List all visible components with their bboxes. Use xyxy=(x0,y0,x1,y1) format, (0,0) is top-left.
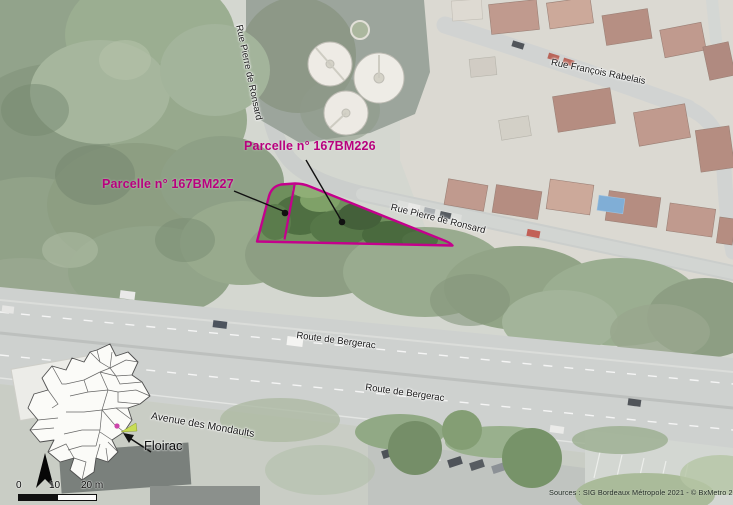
scale-bar-segment-white xyxy=(58,495,96,500)
parcel-226-label: Parcelle n° 167BM226 xyxy=(244,140,376,153)
scale-bar-segment-black xyxy=(19,495,58,500)
scale-tick-0: 0 xyxy=(16,481,22,491)
parcel-226-marker-dot xyxy=(339,219,346,226)
inset-place-label: Floirac xyxy=(144,440,182,453)
map-canvas: Rue Pierre de Ronsard Rue François Rabel… xyxy=(0,0,733,505)
scale-tick-20: 20 m xyxy=(81,481,103,491)
scale-tick-10: 10 xyxy=(49,481,60,491)
floirac-marker-dot xyxy=(114,423,119,428)
parcel-227-label: Parcelle n° 167BM227 xyxy=(102,178,234,191)
map-attribution: Sources : SIG Bordeaux Métropole 2021 - … xyxy=(549,489,733,496)
scale-bar xyxy=(18,494,97,501)
parcel-227-marker-dot xyxy=(282,210,289,217)
